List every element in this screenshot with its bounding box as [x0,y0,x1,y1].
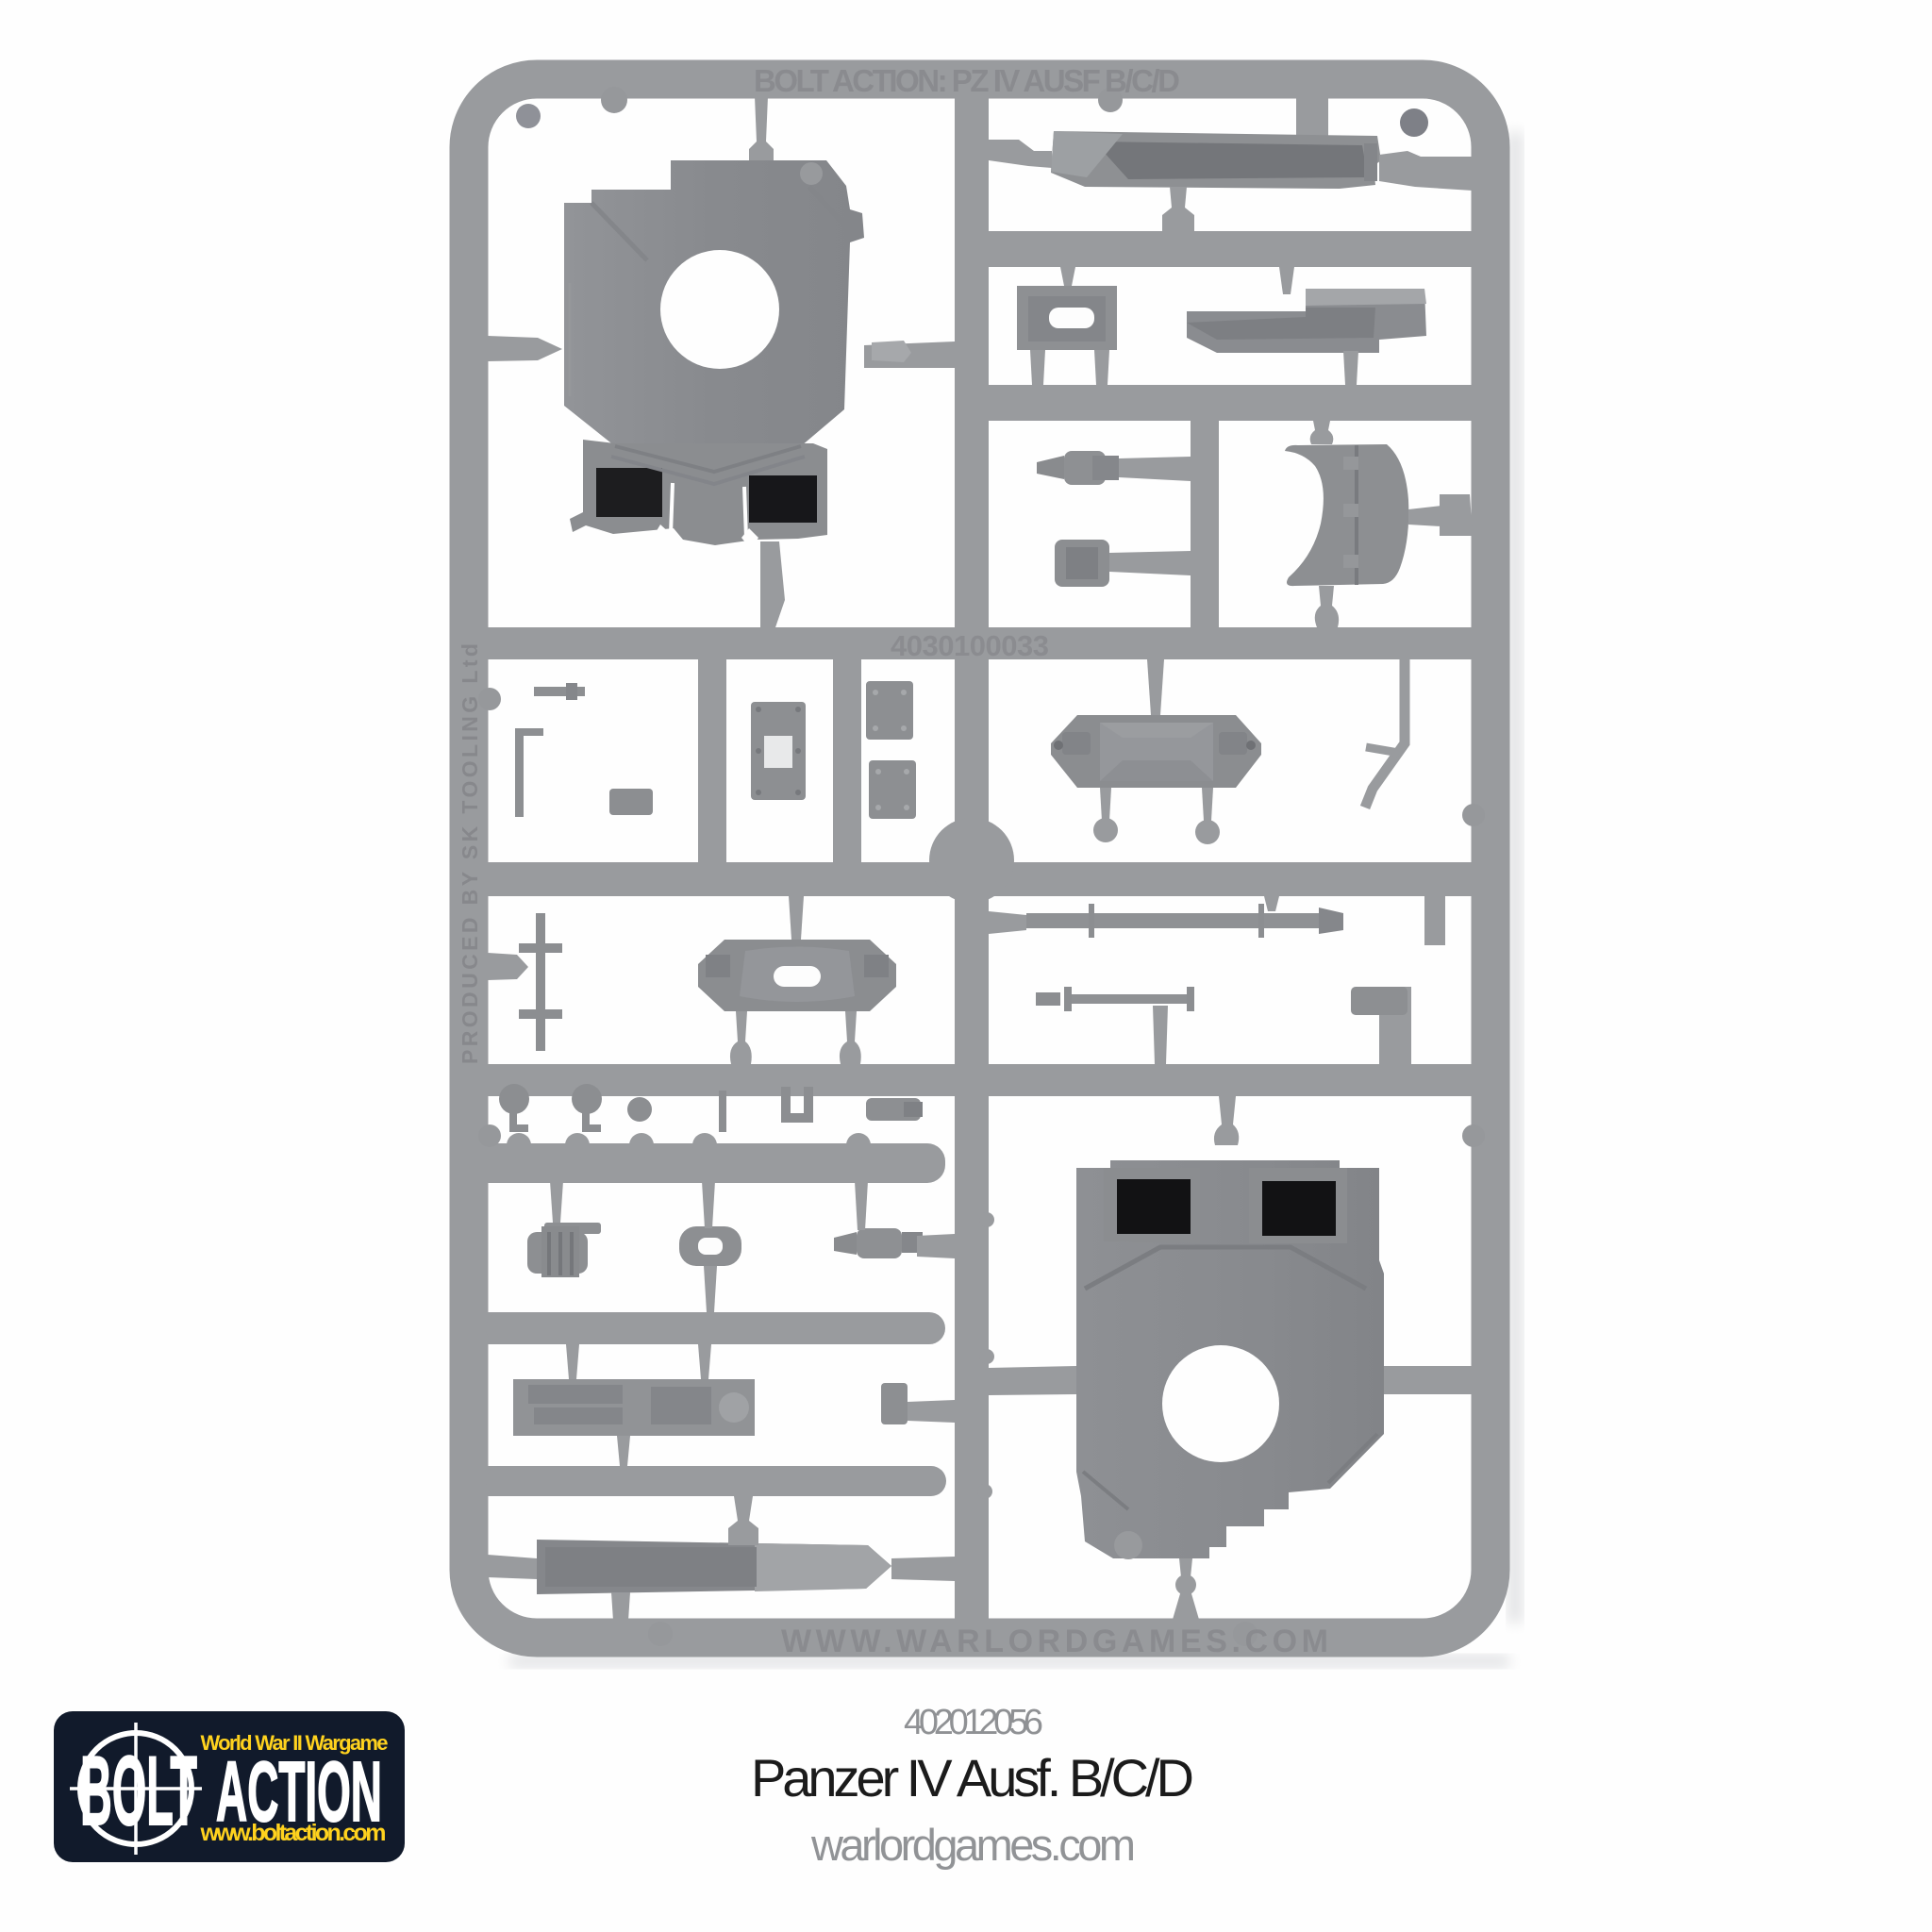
svg-text:PRODUCED BY SK TOOLING Ltd: PRODUCED BY SK TOOLING Ltd [458,643,482,1064]
svg-text:Panzer IV Ausf. B/C/D: Panzer IV Ausf. B/C/D [751,1748,1194,1807]
svg-text:warlordgames.com: warlordgames.com [810,1820,1136,1870]
svg-text:WWW.WARLORDGAMES.COM: WWW.WARLORDGAMES.COM [781,1624,1328,1659]
svg-text:BOLT ACTION: PZ IV AUSF B/C/D: BOLT ACTION: PZ IV AUSF B/C/D [754,63,1180,98]
svg-text:BOLT: BOLT [80,1737,197,1846]
svg-text:402012056: 402012056 [904,1703,1043,1742]
svg-text:www.boltaction.com: www.boltaction.com [200,1820,387,1846]
svg-text:World War II Wargame: World War II Wargame [201,1731,389,1755]
svg-text:4030100033: 4030100033 [891,629,1049,662]
